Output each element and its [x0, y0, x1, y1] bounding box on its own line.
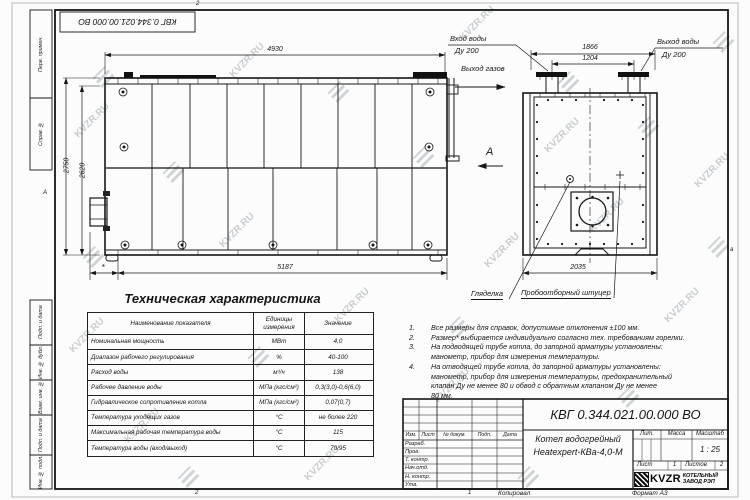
title-block-doc-number: КВГ 0.344.021.00.000 ВО — [523, 399, 728, 430]
tb-sheets-value: 2 — [715, 462, 728, 468]
tb-sheets-label: Листов — [685, 462, 707, 468]
note-text: Размер* выбирается индивидуально согласн… — [422, 333, 729, 343]
copied-label: Копировал — [498, 490, 530, 497]
dim-bottom-5187: 5187 — [262, 264, 308, 271]
dim-flange-1204: 1204 — [568, 55, 612, 62]
tech-table-row: Максимальная рабочая температура воды °С… — [88, 425, 373, 440]
tb-role-tkontr: Т. контр. — [405, 457, 429, 463]
row-units: °С — [253, 426, 304, 440]
row-value: 70/95 — [304, 441, 371, 455]
note-item: 4. На отводящей трубе котла, до запорной… — [407, 362, 729, 401]
row-value: 40-100 — [304, 350, 371, 364]
frame-column-vzam-inv: Взам. инв. № — [30, 380, 52, 415]
note-item: 1. Все размеры для справок, допустимые о… — [407, 323, 729, 333]
row-units: м³/ч — [253, 365, 304, 379]
label-view-a: А — [486, 146, 493, 158]
row-value: 138 — [304, 365, 371, 379]
note-number: 4. — [407, 362, 422, 401]
tb-col-data: Дата — [497, 432, 523, 438]
label-water-outlet: Выход воды — [657, 37, 699, 46]
product-name-line1: Котел водогрейный — [523, 434, 633, 444]
tb-lit-label: Лит. — [633, 431, 661, 437]
note-number: 3. — [407, 342, 422, 361]
kvzr-logo-text: KVZR — [650, 473, 681, 485]
row-units: °С — [253, 441, 304, 455]
label-gas-outlet: Выход газов — [461, 64, 505, 73]
fold-mark-left: А — [43, 190, 47, 196]
label-water-outlet-du: Ду 200 — [662, 50, 686, 59]
row-value: 4,0 — [304, 335, 371, 349]
label-sight-glass: Гляделка — [471, 289, 503, 300]
dim-top-4930: 4930 — [250, 46, 300, 53]
tech-table-header-row: Наименование показателя Единицы измерени… — [88, 313, 373, 334]
row-name: Номинальная мощность — [88, 335, 253, 349]
note-number: 1. — [407, 323, 422, 333]
note-text: На отводящей трубе котла, до запорной ар… — [422, 362, 729, 401]
row-value: 0,07(0,7) — [304, 396, 371, 410]
row-units: МВт — [253, 335, 304, 349]
tech-table-row: Диапазон рабочего регулирования % 40-100 — [88, 349, 373, 364]
tech-table-header-units: Единицы измерения — [253, 313, 304, 334]
rotated-doc-number-stamp: КВГ 0.344.021.00.000 ВО — [60, 12, 195, 32]
note-item: 3. На подводящей трубе котла, до запорно… — [407, 342, 729, 361]
side-view-bolt-dots — [536, 99, 644, 245]
tb-role-prov: Пров. — [405, 449, 420, 455]
tb-role-nachotd: Нач.отд. — [405, 465, 429, 471]
tech-table-row: Расход воды м³/ч 138 — [88, 364, 373, 379]
frame-column-perv-primen: Перв. примен. — [30, 10, 52, 98]
note-item: 2. Размер* выбирается индивидуально согл… — [407, 333, 729, 343]
tech-table-header-value: Значение — [304, 313, 371, 334]
row-name: Гидравлическое сопротивление котла — [88, 396, 253, 410]
company-name-line2: ЗАВОД РЭП — [683, 479, 718, 485]
tb-col-docum: № докум. — [437, 432, 472, 438]
label-sampling-union: Пробоотборный штуцер — [521, 288, 611, 299]
kvzr-logo-icon — [635, 473, 648, 486]
tech-table-row: Рабочее давление воды МПа (кгс/см²) 0,3(… — [88, 380, 373, 395]
tech-table-header-name: Наименование показателя — [88, 313, 253, 334]
row-units: °С — [253, 411, 304, 425]
tech-table-title: Техническая характеристика — [100, 291, 345, 306]
row-units: МПа (кгс/см²) — [253, 381, 304, 395]
row-units: МПа (кгс/см²) — [253, 396, 304, 410]
frame-column-sprav-no: Справ. № — [30, 98, 52, 170]
tb-scale-label: Масштаб — [692, 431, 728, 437]
label-water-inlet-du: Ду 200 — [455, 46, 479, 55]
tb-scale-value: 1 : 25 — [692, 445, 728, 454]
tb-col-list: Лист — [419, 432, 437, 438]
dim-left-2620: 2620 — [80, 156, 87, 186]
fold-mark-bottom-left: 2 — [195, 490, 198, 496]
frame-column-inv-podl: Инв. № подл. — [30, 455, 52, 489]
frame-column-podp-data-2: Подп. и дата — [30, 415, 52, 455]
dim-bottom-star: * — [97, 263, 109, 272]
drawing-sheet: KVZR.RU KVZR.RU KVZR.RU KVZR.RU KVZR.RU … — [0, 0, 750, 500]
tech-table-row: Гидравлическое сопротивление котла МПа (… — [88, 395, 373, 410]
row-value: не более 220 — [304, 411, 371, 425]
tb-col-podp: Подп. — [472, 432, 497, 438]
note-text: На подводящей трубе котла, до запорной а… — [422, 342, 729, 361]
company-logo-block: KVZR КОТЕЛЬНЫЙ ЗАВОД РЭП — [635, 470, 727, 488]
tech-table-row: Температура воды (вход/выход) °С 70/95 — [88, 440, 373, 455]
label-water-inlet: Вход воды — [450, 34, 486, 43]
tech-table-row: Температура уходящих газов °С не более 2… — [88, 410, 373, 425]
fold-mark-right: а — [730, 247, 733, 253]
tb-sheet-value: 1 — [668, 462, 681, 468]
main-view-linework — [90, 72, 459, 261]
frame-column-podp-data-1: Подп. и дата — [30, 300, 52, 345]
tb-role-razrab: Разраб. — [405, 441, 425, 447]
note-number: 2. — [407, 333, 422, 343]
dim-flange-1866: 1866 — [568, 44, 612, 51]
format-label: Формат А3 — [632, 490, 668, 497]
row-name: Диапазон рабочего регулирования — [88, 350, 253, 364]
row-name: Максимальная рабочая температура воды — [88, 426, 253, 440]
dim-width-2035: 2035 — [556, 264, 600, 271]
note-text: Все размеры для справок, допустимые откл… — [422, 323, 729, 333]
tb-sheet-label: Лист — [637, 462, 652, 468]
tech-table-row: Номинальная мощность МВт 4,0 — [88, 334, 373, 349]
row-value: 0,3(3,0)-0,6(6,0) — [304, 381, 371, 395]
tb-mass-label: Масса — [661, 431, 692, 437]
tb-col-izm: Изм. — [403, 432, 419, 438]
row-name: Рабочее давление воды — [88, 381, 253, 395]
dimension-lines — [63, 45, 723, 299]
notes-list: 1. Все размеры для справок, допустимые о… — [407, 323, 729, 401]
dim-left-2750: 2750 — [64, 151, 71, 181]
frame-column-inv-dubl: Инв. № дубл. — [30, 345, 52, 380]
row-value: 115 — [304, 426, 371, 440]
row-units: % — [253, 350, 304, 364]
product-name-line2: Heatexpert-КВа-4,0-М — [523, 447, 633, 457]
fold-mark-bottom-center: 1 — [468, 490, 471, 496]
row-name: Температура воды (вход/выход) — [88, 441, 253, 455]
fold-mark-top: 2 — [196, 1, 199, 7]
tb-role-utv: Утв. — [405, 482, 418, 488]
row-name: Расход воды — [88, 365, 253, 379]
tech-table: Наименование показателя Единицы измерени… — [87, 312, 374, 457]
tb-role-nkontr: Н. контр. — [405, 474, 430, 480]
row-name: Температура уходящих газов — [88, 411, 253, 425]
